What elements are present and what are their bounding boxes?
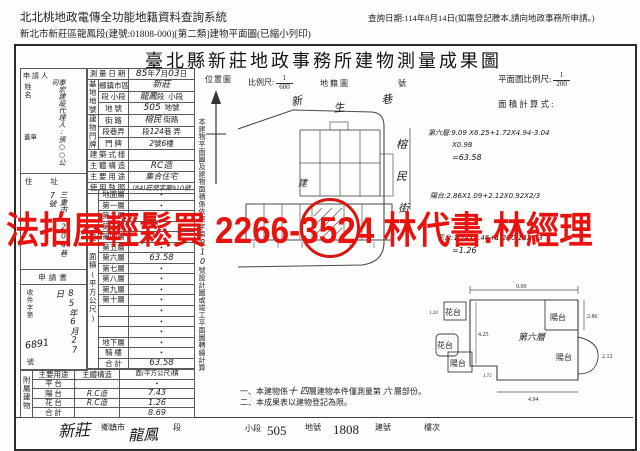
balcony-label-l: 陽台 — [450, 358, 466, 368]
building-mark: 建 — [298, 178, 308, 189]
label-cell: 街 路 — [99, 115, 129, 127]
survey-day: 03 — [168, 69, 179, 79]
label-cell: 段巷弄 — [99, 126, 129, 138]
table-row: 地 號 505 地號 — [87, 103, 195, 115]
label-cell: 主 體 構 造 — [87, 161, 129, 172]
section-value: 龍鳳 — [140, 92, 157, 102]
dim-step: 1.72 — [483, 374, 492, 379]
floor-value: • — [129, 274, 195, 285]
floor-label: 第六層 — [99, 253, 129, 264]
floor-value-area: 63.58 — [129, 253, 195, 264]
value-cell: 505 地號 — [129, 103, 195, 115]
annex-area: 1.26 — [120, 398, 195, 408]
table-row: 主 要 用 途集合住宅 — [87, 172, 195, 183]
scanned-survey-document: 北北桃地政電傳全功能地籍資料查詢系統 查詢日期:114年8月14日(如需登記謄本… — [0, 0, 640, 451]
unit: 地號 — [164, 103, 179, 112]
table-row: 第九層• — [87, 284, 195, 295]
table-row: • — [87, 327, 195, 338]
table-row: 第七層• — [87, 263, 195, 274]
unit: 小段 — [168, 92, 183, 101]
street-top-char-1: 新 — [290, 94, 305, 109]
note1-post: 層部份。 — [392, 387, 426, 396]
table-row: 基地地號 鄉鎮市區 新莊 — [87, 80, 195, 92]
applicant-group-label: 申請人 — [23, 71, 50, 81]
table-row: • — [87, 306, 195, 317]
structure-value: RC造 — [129, 161, 195, 172]
building-info-table: 測 量 日 期 85年7月03日 基地地號 鄉鎮市區 新莊 段 小段 龍鳳段 小… — [86, 68, 195, 194]
note1-floors-hw: 十 四 — [288, 387, 309, 397]
table-row: 合 計63.58 — [87, 358, 195, 369]
table-row: 花 台R.C造1.26 — [21, 398, 195, 408]
label-cell: 門 牌 — [99, 138, 129, 150]
floor-value: • — [129, 295, 195, 306]
annex-group-label: 附屬建物 — [21, 370, 33, 418]
value-cell: 段124巷 弄 — [129, 126, 195, 138]
unit: 年 — [147, 69, 155, 78]
annex-structure — [75, 379, 120, 389]
note1-pre: 一、本建物係 — [240, 387, 288, 396]
table-row: 合 計8.69 — [21, 408, 195, 418]
intake-date: 85年6月27日 — [53, 288, 82, 360]
unit: 樓 — [166, 139, 174, 148]
table-row: 段 小段 龍鳳段 小段 — [87, 91, 195, 103]
label-cell: 主 要 用 途 — [87, 172, 129, 183]
footer-town-label: 鄉鎮市 — [101, 422, 125, 433]
value-cell: 2號6樓 — [129, 138, 195, 150]
table-row: 主 體 構 造RC造 — [87, 161, 195, 172]
side-note-post: 號設計圖或竣工平面圖轉繪計算 — [198, 267, 206, 372]
floor-label: 合 計 — [99, 358, 129, 369]
footer-section-hw: 龍鳳 — [128, 423, 159, 445]
dim-bottom: 4.94 — [528, 397, 539, 403]
annex-use: 平 台 — [33, 379, 75, 389]
floor-label — [99, 316, 129, 327]
footer-floor-label: 樓次 — [424, 422, 440, 433]
footer-town-hw: 新莊 — [57, 416, 90, 442]
plan-scale-numerator: 1 — [560, 72, 564, 80]
floor-label: 第八層 — [99, 274, 129, 285]
floor-label: 第六層 — [518, 332, 546, 343]
table-row: 陽 台R.C造7.43 — [21, 389, 195, 399]
annex-structure: R.C造 — [75, 398, 120, 408]
location-map-label: 位置圖 — [205, 74, 232, 85]
note1-floor-hw: 六 — [383, 387, 392, 397]
dim-left-planter: 1.24 — [429, 311, 438, 316]
dim-left-inner: 4.25 — [478, 332, 489, 338]
plan-scale: 平面圖比例尺:1200 — [498, 72, 572, 88]
footer-building-label: 建號 — [375, 422, 391, 433]
floor-label: 騎 樓 — [99, 348, 129, 359]
intake-number: 6891 — [24, 337, 49, 351]
floor-value: • — [129, 190, 195, 201]
unit: 街路 — [163, 115, 178, 124]
label-cell: 段 小段 — [99, 91, 129, 103]
calc-line-1: 第六層:9.09 X6.25+1.72X4.94-3.04 — [428, 128, 550, 138]
annex-header-use: 主要用途 — [33, 370, 75, 380]
scale-numerator: 1 — [283, 75, 287, 83]
annex-structure: R.C造 — [75, 389, 120, 399]
footer-parcel-number: 505 — [267, 423, 287, 439]
print-subtitle: 新北市新莊區龍鳳段(建號:01808-000)[第二類]建物平面圖(已縮小列印) — [20, 26, 311, 40]
query-date-note: 查詢日期:114年8月14日(如需登記謄本,請向地政事務所申請。) — [368, 12, 595, 24]
annex-use: 合 計 — [33, 408, 75, 418]
floor-value: • — [129, 263, 195, 274]
table-row: 第八層• — [87, 274, 195, 285]
annex-area: 8.69 — [120, 408, 195, 418]
planter-label-ml: 花台 — [437, 340, 453, 350]
footer-parcel-label: 地號 — [305, 422, 321, 433]
street-right-char-2: 民 — [396, 170, 408, 183]
note1-mid: 層建物本件僅測量第 — [309, 387, 383, 396]
dim-right-upper: 2.86 — [587, 314, 598, 320]
table-row: 建物門牌 街 路 榕民 街路 — [87, 115, 195, 127]
district-value: 新莊 — [129, 80, 195, 92]
dim-top: 9.09 — [516, 284, 527, 290]
north-arrow-icon — [203, 88, 229, 188]
note-line-2: 二、本成果表以建物登記為限。 — [240, 397, 352, 408]
footer-subsection-label: 小段 — [245, 423, 261, 434]
value-cell: 龍鳳段 小段 — [129, 91, 195, 103]
usage-value: 集合住宅 — [129, 172, 195, 183]
planter-label-tl: 花台 — [445, 307, 461, 317]
table-row: • — [87, 316, 195, 327]
floor-label — [99, 327, 129, 338]
table-row: 騎 樓• — [87, 348, 195, 359]
annex-area: 7.43 — [120, 389, 195, 399]
floor-value: • — [129, 284, 195, 295]
unit: 段 — [157, 92, 165, 101]
table-row: 第六層63.58 — [87, 253, 195, 264]
floor-label: 第十層 — [99, 295, 129, 306]
table-row: 建 面積(平方公尺)地面層• — [87, 190, 195, 201]
unit: 段 — [142, 127, 150, 136]
table-row: 第十層• — [87, 295, 195, 306]
parcel-value: 505 — [144, 103, 161, 113]
floor-value: • — [129, 337, 195, 348]
unit: 號 — [154, 139, 162, 148]
unit: 巷 — [164, 127, 172, 136]
survey-year: 85 — [136, 69, 147, 79]
table-row: 段巷弄 段124巷 弄 — [87, 126, 195, 138]
plan-scale-label: 平面圖比例尺: — [498, 74, 551, 84]
floor-label: 地下層 — [99, 337, 129, 348]
calc-line-2: X0.98 — [452, 141, 472, 149]
table-row: 測 量 日 期 85年7月03日 — [87, 69, 195, 80]
floor-total-value: 63.58 — [129, 358, 195, 369]
unit: 弄 — [173, 127, 181, 136]
footer-building-number: 1808 — [333, 422, 359, 438]
area-calc-label: 面 積 計 算 式 : — [498, 98, 554, 110]
label-cell: 鄉鎮市區 — [99, 80, 129, 92]
floor-value: • — [129, 348, 195, 359]
red-ad-banner: 法拍屋輕鬆買 2266-3524 林代書.林經理 — [6, 200, 593, 254]
unit: 日 — [180, 69, 188, 78]
dim-right-lower: 2.12 — [602, 354, 613, 360]
site-group-label: 基地地號 — [87, 80, 99, 115]
system-title: 北北桃地政電傳全功能地籍資料查詢系統 — [20, 9, 227, 25]
annex-use: 花 台 — [33, 398, 75, 408]
street-top-char-2: 生 — [333, 101, 346, 115]
table-row: 建 築 式 樣 — [87, 150, 195, 161]
label-cell: 地 號 — [99, 103, 129, 115]
street-top-char-3: 巷 — [380, 92, 394, 107]
applicant-seal-label: 蓋章 — [24, 131, 37, 141]
street-right-char-1: 榕 — [396, 138, 409, 151]
balcony-label-rm: 陽台 — [556, 352, 572, 362]
plan-scale-denominator: 200 — [553, 80, 570, 89]
value-cell: 85年7月03日 — [129, 69, 195, 80]
application-form-label: 申請書 — [25, 272, 83, 283]
label-cell: 測 量 日 期 — [87, 69, 129, 80]
intake-number-suffix: 號 — [27, 357, 34, 367]
unit: 月 — [161, 69, 169, 78]
value-cell — [129, 150, 195, 161]
floor-value: • — [129, 316, 195, 327]
annex-area: • — [120, 379, 195, 389]
annex-use: 陽 台 — [33, 389, 75, 399]
value-cell: 榕民 街路 — [129, 115, 195, 127]
floor-value: • — [129, 327, 195, 338]
address-label: 住 址 — [25, 176, 83, 187]
annex-header-structure: 主體構造 — [75, 370, 120, 380]
floor-plan-svg: 9.09 陽台 2.86 陽台 2.12 花台 1.24 花台 陽台 4.25 … — [428, 280, 628, 408]
applicant-name-label: 姓名 — [23, 83, 33, 113]
floor-label: 地面層 — [99, 190, 129, 201]
floor-label: 第七層 — [99, 263, 129, 274]
lane-value: 124 — [150, 127, 164, 136]
floor-label: 第九層 — [99, 284, 129, 295]
table-row: 附屬建物 主要用途 主體構造 面(平方公尺)積 — [21, 370, 195, 380]
street-value: 榕民 — [145, 115, 162, 125]
table-row: 平 台• — [21, 379, 195, 389]
note-line-1: 一、本建物係十 四層建物本件僅測量第 六 層部份。 — [240, 384, 426, 397]
calc-line-3: =63.58 — [452, 153, 482, 162]
premises-group-label: 建物門牌 — [87, 115, 99, 150]
footer-section-label: 段 — [173, 422, 181, 433]
table-row: 門 牌 2號6樓 — [87, 138, 195, 150]
annex-building-table: 附屬建物 主要用途 主體構造 面(平方公尺)積 平 台• 陽 台R.C造7.43… — [20, 369, 195, 418]
label-cell: 建 築 式 樣 — [87, 150, 129, 161]
annex-header-area: 面(平方公尺)積 — [120, 370, 195, 380]
floor-label — [99, 306, 129, 317]
balcony-label-tr: 陽台 — [550, 312, 566, 322]
table-row: 地下層• — [87, 337, 195, 348]
floor-value: • — [129, 306, 195, 317]
applicant-name-value: 泰宏建設代理人:張○○公司 — [51, 79, 65, 167]
